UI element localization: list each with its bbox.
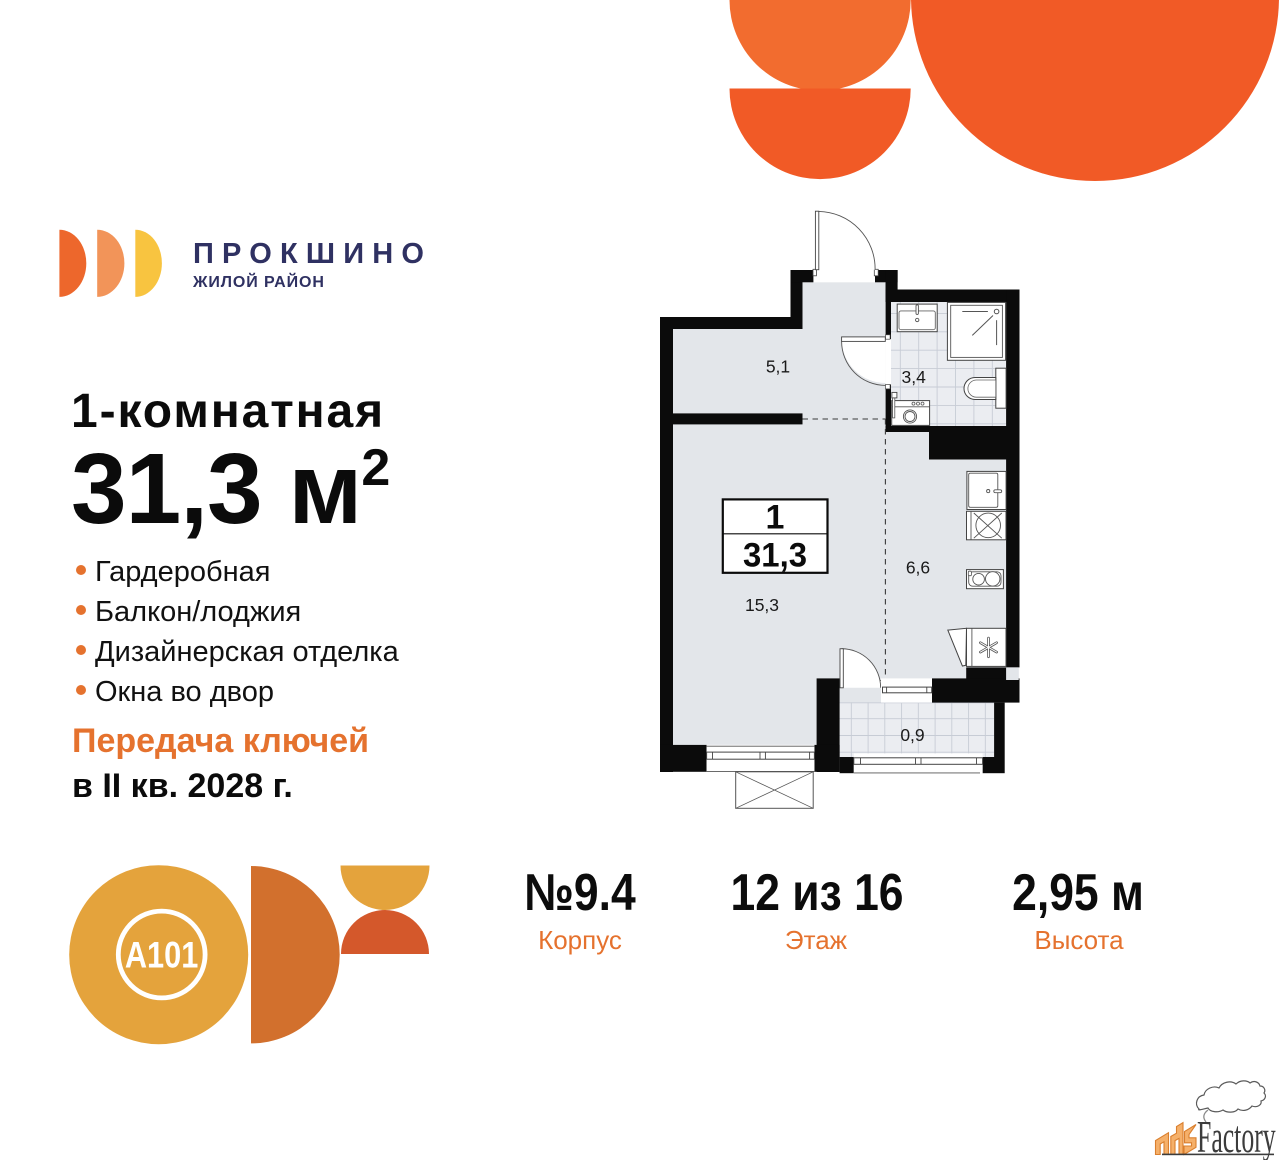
svg-text:15,3: 15,3 xyxy=(745,595,779,615)
svg-text:5,1: 5,1 xyxy=(766,357,790,377)
svg-text:A101: A101 xyxy=(125,934,199,976)
svg-text:0,9: 0,9 xyxy=(900,725,924,745)
svg-text:Factory: Factory xyxy=(1197,1113,1276,1160)
svg-text:31,3: 31,3 xyxy=(743,537,807,575)
svg-text:1: 1 xyxy=(766,499,785,537)
svg-text:6,6: 6,6 xyxy=(906,558,930,578)
svg-text:3,4: 3,4 xyxy=(902,367,927,387)
